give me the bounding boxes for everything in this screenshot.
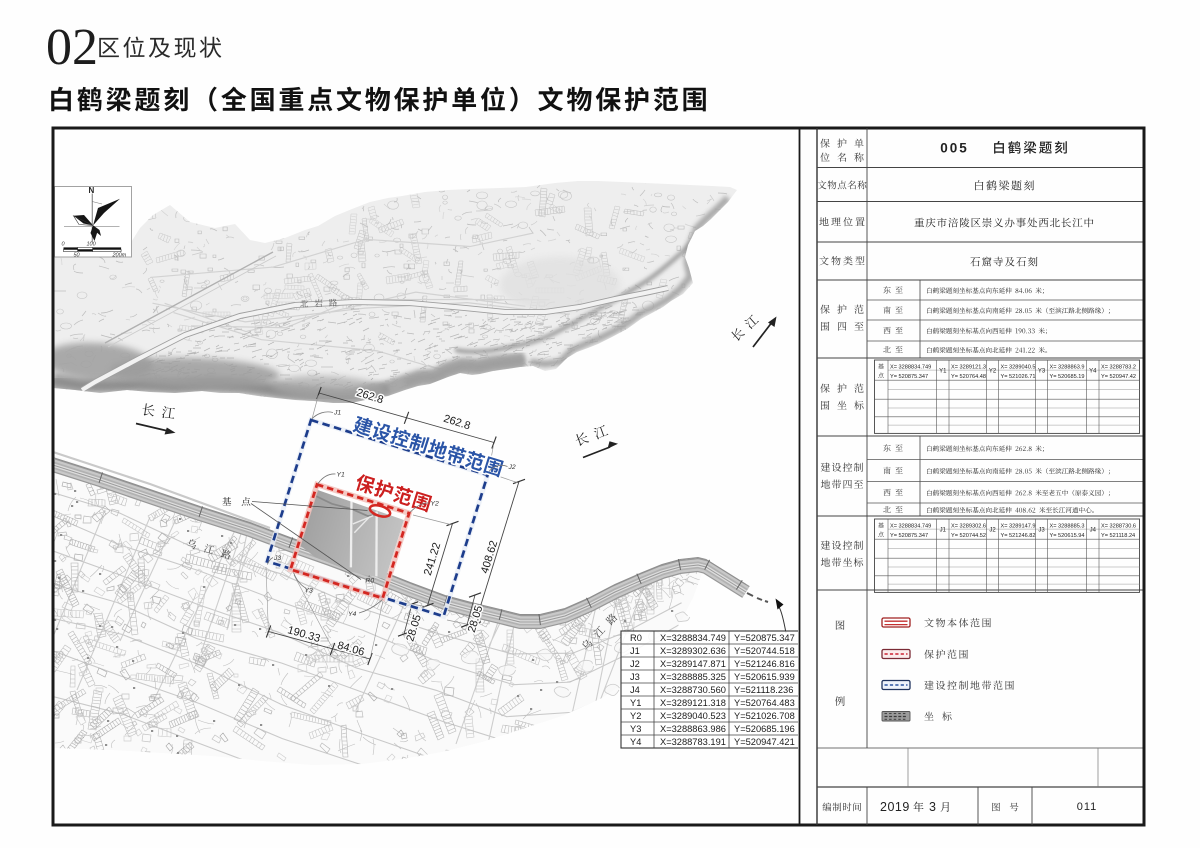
svg-text:X= 3289302.6: X= 3289302.6 [951, 523, 986, 529]
svg-text:X=3289040.523: X=3289040.523 [660, 711, 726, 721]
svg-text:Y=521026.708: Y=521026.708 [734, 711, 795, 721]
svg-text:Y=520875.347: Y=520875.347 [734, 633, 795, 643]
svg-text:Y4: Y4 [348, 611, 357, 618]
svg-text:X=3288730.560: X=3288730.560 [660, 685, 726, 695]
svg-text:Y= 520685.19: Y= 520685.19 [1050, 374, 1085, 380]
svg-text:J1: J1 [333, 410, 341, 417]
svg-text:Y= 521246.82: Y= 521246.82 [1001, 533, 1036, 539]
svg-text:X= 3288834.749: X= 3288834.749 [890, 523, 931, 529]
svg-text:X= 3289147.9: X= 3289147.9 [1001, 523, 1036, 529]
svg-text:100: 100 [87, 242, 97, 248]
svg-text:Y=520685.196: Y=520685.196 [734, 724, 795, 734]
svg-text:Y1: Y1 [337, 472, 346, 479]
svg-text:X=3289121.318: X=3289121.318 [660, 698, 726, 708]
svg-text:Y= 520764.48: Y= 520764.48 [951, 374, 986, 380]
svg-text:X= 3288783.2: X= 3288783.2 [1101, 364, 1136, 370]
svg-text:Y= 520875.347: Y= 520875.347 [890, 374, 928, 380]
svg-text:Y1: Y1 [630, 698, 641, 708]
svg-text:J2: J2 [630, 659, 640, 669]
svg-text:X=3288885.325: X=3288885.325 [660, 672, 726, 682]
svg-text:Y= 520875.347: Y= 520875.347 [890, 533, 928, 539]
svg-text:3: 3 [929, 800, 936, 814]
svg-text:X=3289147.871: X=3289147.871 [660, 659, 726, 669]
svg-text:N: N [89, 186, 95, 195]
svg-text:Y3: Y3 [630, 724, 641, 734]
svg-text:J3: J3 [273, 555, 281, 562]
svg-text:011: 011 [1077, 801, 1098, 813]
svg-text:005: 005 [940, 141, 969, 156]
svg-text:J4: J4 [1090, 527, 1097, 533]
svg-text:X= 3289121.3: X= 3289121.3 [951, 364, 986, 370]
svg-text:R0: R0 [366, 578, 375, 585]
svg-text:Y= 520744.52: Y= 520744.52 [951, 533, 986, 539]
svg-text:Y=520764.483: Y=520764.483 [734, 698, 795, 708]
svg-text:J2: J2 [989, 527, 996, 533]
svg-text:Y= 521026.71: Y= 521026.71 [1001, 374, 1036, 380]
svg-text:J1: J1 [630, 646, 640, 656]
svg-text:Y2: Y2 [431, 501, 440, 508]
svg-text:Y4: Y4 [630, 737, 641, 747]
svg-text:X=3288834.749: X=3288834.749 [660, 633, 726, 643]
svg-text:02: 02 [46, 19, 98, 76]
svg-text:J3: J3 [1038, 527, 1045, 533]
svg-text:Y= 520947.42: Y= 520947.42 [1101, 374, 1136, 380]
svg-text:X= 3288885.3: X= 3288885.3 [1050, 523, 1085, 529]
svg-text:Y=520744.518: Y=520744.518 [734, 646, 795, 656]
svg-text:2019: 2019 [880, 800, 910, 814]
svg-text:Y3: Y3 [1038, 368, 1046, 374]
svg-text:Y4: Y4 [1089, 368, 1097, 374]
svg-text:Y2: Y2 [630, 711, 641, 721]
svg-text:Y=520947.421: Y=520947.421 [734, 737, 795, 747]
svg-text:X= 3288863.9: X= 3288863.9 [1050, 364, 1085, 370]
svg-text:X=3288783.191: X=3288783.191 [660, 737, 726, 747]
svg-text:50: 50 [74, 253, 81, 259]
svg-text:R0: R0 [630, 633, 642, 643]
svg-text:J2: J2 [508, 464, 516, 471]
svg-text:J3: J3 [630, 672, 640, 682]
svg-text:X=3288863.986: X=3288863.986 [660, 724, 726, 734]
svg-text:Y= 521118.24: Y= 521118.24 [1101, 533, 1135, 539]
svg-text:Y1: Y1 [939, 368, 947, 374]
svg-text:X= 3288834.749: X= 3288834.749 [890, 364, 931, 370]
svg-text:Y= 520615.94: Y= 520615.94 [1050, 533, 1085, 539]
svg-text:Y=520615.939: Y=520615.939 [734, 672, 795, 682]
svg-text:J1: J1 [940, 527, 947, 533]
svg-text:Y2: Y2 [989, 368, 997, 374]
svg-text:Y=521246.816: Y=521246.816 [734, 659, 795, 669]
svg-text:X= 3288730.6: X= 3288730.6 [1101, 523, 1136, 529]
svg-text:J4: J4 [630, 685, 640, 695]
svg-text:X= 3289040.5: X= 3289040.5 [1001, 364, 1036, 370]
svg-text:X=3289302.636: X=3289302.636 [660, 646, 726, 656]
svg-text:Y=521118.236: Y=521118.236 [734, 685, 793, 695]
svg-text:200m: 200m [112, 253, 127, 259]
